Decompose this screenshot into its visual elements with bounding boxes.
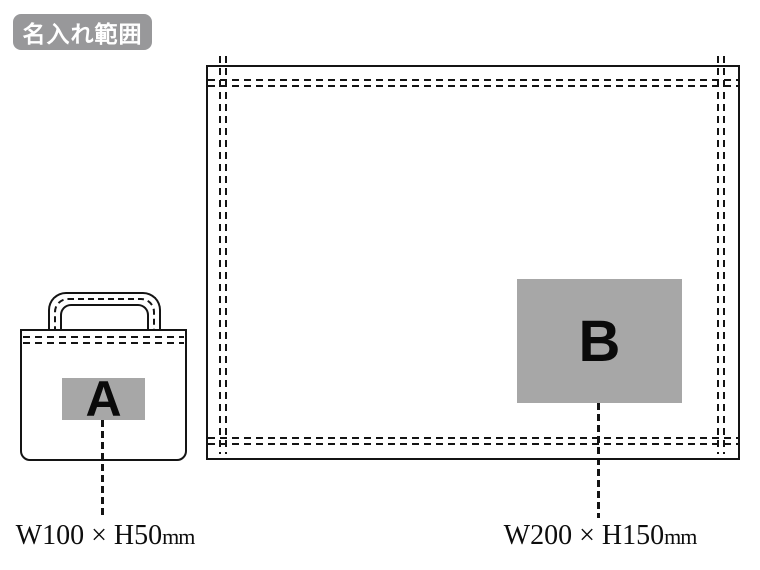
spread-stitch-line-right <box>717 56 719 454</box>
dimension-label-b-size: W200 × H150 <box>504 520 664 551</box>
spread-stitch-line-top <box>208 85 738 87</box>
spread-stitch-line-left <box>225 56 227 454</box>
dimension-label-a: W100 × H50mm <box>16 520 195 552</box>
print-area-b-letter: B <box>579 308 621 375</box>
print-area-b: B <box>517 279 682 403</box>
spread-stitch-line-left <box>219 56 221 454</box>
leader-line-b <box>597 403 600 518</box>
leader-line-a <box>101 420 104 518</box>
dimension-label-b: W200 × H150mm <box>504 520 697 552</box>
imprint-area-badge: 名入れ範囲 <box>13 14 152 50</box>
imprint-area-badge-label: 名入れ範囲 <box>23 15 143 49</box>
spread-stitch-line-right <box>723 56 725 454</box>
imprint-area-diagram: 名入れ範囲 A B W100 × H50mm W200 × <box>0 0 760 570</box>
dimension-label-b-unit: mm <box>664 524 696 549</box>
print-area-a: A <box>62 378 145 420</box>
dimension-label-a-size: W100 × H50 <box>16 520 162 551</box>
spread-stitch-line-bottom <box>208 443 738 445</box>
bag-hem-stitch-line <box>23 342 184 344</box>
spread-stitch-line-bottom <box>208 437 738 439</box>
bag-handle-inner-outline <box>60 304 149 331</box>
dimension-label-a-unit: mm <box>162 524 194 549</box>
spread-stitch-line-top <box>208 79 738 81</box>
bag-hem-stitch-line <box>23 336 184 338</box>
